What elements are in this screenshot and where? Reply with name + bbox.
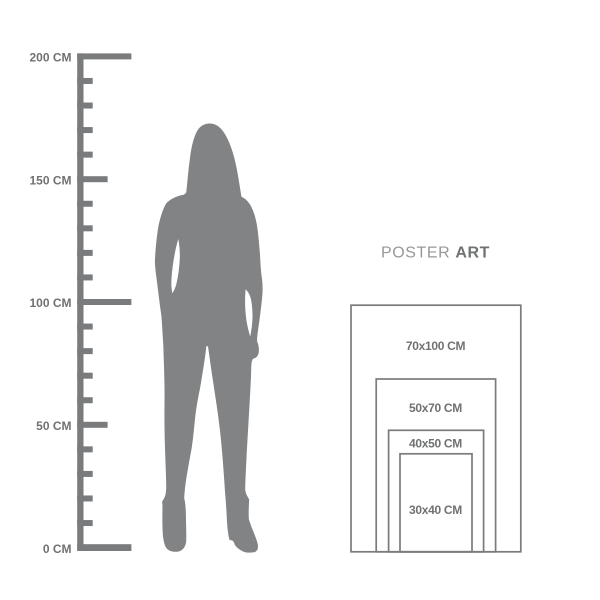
- svg-text:50 CM: 50 CM: [36, 419, 71, 433]
- svg-text:POSTER ART: POSTER ART: [381, 245, 490, 262]
- svg-text:40x50 CM: 40x50 CM: [409, 437, 462, 451]
- svg-text:70x100 CM: 70x100 CM: [406, 339, 466, 353]
- svg-text:150 CM: 150 CM: [29, 173, 71, 187]
- svg-text:200 CM: 200 CM: [29, 51, 71, 65]
- svg-text:50x70 CM: 50x70 CM: [409, 401, 462, 415]
- svg-text:30x40 CM: 30x40 CM: [409, 503, 462, 517]
- svg-text:0 CM: 0 CM: [43, 542, 72, 556]
- svg-text:100 CM: 100 CM: [29, 296, 71, 310]
